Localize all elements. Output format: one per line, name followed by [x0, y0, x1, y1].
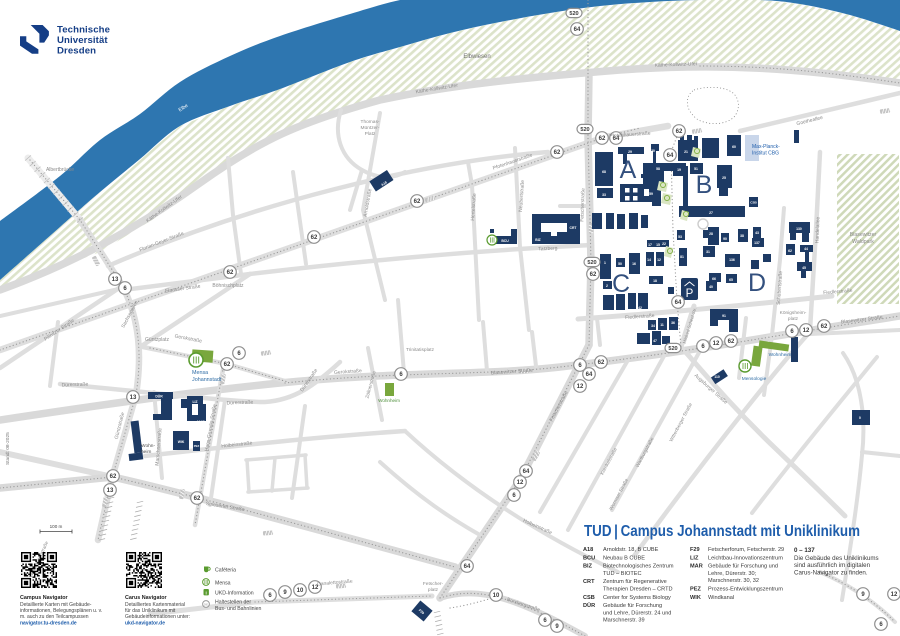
- svg-text:Marschnerstr. 39: Marschnerstr. 39: [603, 618, 645, 624]
- svg-text:Elbwiesen: Elbwiesen: [463, 54, 490, 60]
- svg-text:13: 13: [107, 488, 114, 494]
- svg-text:11: 11: [660, 323, 664, 327]
- svg-text:15: 15: [656, 243, 660, 247]
- svg-text:62: 62: [224, 362, 231, 368]
- svg-text:62: 62: [194, 496, 201, 502]
- svg-text:DÜR: DÜR: [583, 602, 595, 609]
- svg-text:31: 31: [706, 250, 710, 254]
- svg-text:D: D: [748, 269, 766, 297]
- svg-text:DÜR: DÜR: [155, 394, 163, 399]
- svg-text:59: 59: [649, 192, 653, 196]
- svg-text:64: 64: [675, 300, 682, 306]
- svg-text:LIZ: LIZ: [690, 555, 699, 561]
- svg-text:62: 62: [554, 150, 561, 156]
- svg-text:Haltestellen der: Haltestellen der: [215, 600, 251, 606]
- svg-text:Königsheim-: Königsheim-: [780, 310, 807, 316]
- svg-text:62: 62: [821, 324, 828, 330]
- svg-text:520: 520: [569, 11, 578, 17]
- svg-text:16: 16: [632, 262, 636, 266]
- svg-text:Dürerstraße: Dürerstraße: [227, 400, 254, 407]
- svg-text:38: 38: [740, 234, 744, 238]
- svg-text:20: 20: [688, 230, 692, 234]
- svg-text:58: 58: [656, 167, 660, 171]
- svg-text:29: 29: [628, 150, 632, 154]
- svg-text:Fetscher-: Fetscher-: [423, 581, 444, 587]
- svg-text:Dresden: Dresden: [57, 46, 96, 57]
- svg-text:heim: heim: [141, 449, 151, 455]
- svg-text:CRT: CRT: [570, 226, 578, 230]
- svg-text:Böhnischplatz: Böhnischplatz: [212, 283, 244, 289]
- svg-text:Universität: Universität: [57, 35, 108, 46]
- svg-text:Dürerstraße: Dürerstraße: [62, 382, 89, 389]
- svg-text:34: 34: [651, 324, 655, 328]
- svg-text:Neubau B CUBE: Neubau B CUBE: [603, 555, 645, 561]
- svg-text:65: 65: [729, 278, 733, 282]
- svg-text:Gebäude für Forschung: Gebäude für Forschung: [603, 603, 662, 609]
- svg-text:Wohnheim: Wohnheim: [769, 352, 792, 358]
- svg-text:47: 47: [653, 339, 657, 343]
- svg-text:Arnoldstr. 18, B CUBE: Arnoldstr. 18, B CUBE: [603, 547, 659, 553]
- svg-text:CSB: CSB: [750, 201, 757, 205]
- svg-text:25: 25: [722, 176, 726, 180]
- svg-text:Platz: Platz: [365, 131, 376, 137]
- svg-text:Marschnerstr. 30, 32: Marschnerstr. 30, 32: [708, 578, 759, 584]
- svg-text:36: 36: [671, 321, 675, 325]
- svg-text:B: B: [696, 171, 713, 199]
- svg-text:90: 90: [723, 237, 727, 241]
- svg-text:2: 2: [606, 284, 608, 288]
- svg-text:CRT: CRT: [583, 579, 595, 585]
- svg-text:Blasewitzer: Blasewitzer: [850, 232, 877, 238]
- svg-text:A18: A18: [583, 547, 593, 553]
- svg-text:Windkanal: Windkanal: [708, 595, 734, 601]
- svg-text:50: 50: [618, 262, 622, 266]
- svg-text:62: 62: [788, 249, 792, 253]
- svg-text:10: 10: [297, 588, 304, 594]
- svg-text:27: 27: [709, 211, 713, 215]
- svg-text:62: 62: [676, 129, 683, 135]
- svg-text:64: 64: [667, 153, 674, 159]
- svg-text:BCU: BCU: [583, 555, 595, 561]
- svg-text:12: 12: [517, 480, 524, 486]
- svg-text:21: 21: [684, 150, 688, 154]
- svg-text:64: 64: [464, 564, 471, 570]
- svg-text:14: 14: [647, 258, 651, 262]
- svg-text:BIZ: BIZ: [583, 564, 593, 570]
- svg-text:62: 62: [599, 136, 606, 142]
- svg-text:19: 19: [677, 168, 681, 172]
- svg-text:Mensa: Mensa: [215, 581, 231, 587]
- svg-text:91: 91: [722, 314, 726, 318]
- svg-text:Therapien Dresden – CRTD: Therapien Dresden – CRTD: [603, 587, 673, 593]
- svg-text:C: C: [612, 270, 630, 298]
- svg-text:TUD | Campus Johannstadt mit U: TUD | Campus Johannstadt mit Uniklinikum: [584, 523, 860, 540]
- svg-text:62: 62: [227, 270, 234, 276]
- svg-text:MAR: MAR: [197, 420, 205, 424]
- svg-text:Stand: 08-2025: Stand: 08-2025: [5, 432, 11, 465]
- svg-text:44: 44: [804, 247, 808, 251]
- svg-text:1: 1: [604, 261, 606, 265]
- svg-text:Gebäude für Forschung und: Gebäude für Forschung und: [708, 564, 778, 570]
- svg-text:Güntzplatz: Güntzplatz: [145, 337, 169, 343]
- svg-text:Leichtbau-Innovationszentrum: Leichtbau-Innovationszentrum: [708, 555, 783, 561]
- svg-text:12: 12: [803, 328, 810, 334]
- svg-text:12: 12: [713, 341, 720, 347]
- svg-text:P: P: [686, 288, 694, 300]
- svg-text:platz: platz: [428, 587, 439, 593]
- svg-text:22: 22: [662, 242, 666, 246]
- svg-text:12: 12: [891, 592, 898, 598]
- svg-text:H: H: [204, 602, 207, 607]
- svg-text:F29: F29: [690, 547, 700, 553]
- svg-text:0: 0: [859, 416, 861, 420]
- svg-text:Trinitatisplatz: Trinitatisplatz: [406, 347, 435, 353]
- svg-text:12: 12: [577, 384, 584, 390]
- svg-text:Institut CBG: Institut CBG: [752, 151, 779, 157]
- svg-text:Bus- und Bahnlinien: Bus- und Bahnlinien: [215, 606, 262, 612]
- svg-text:Biotechnologisches Zentrum: Biotechnologisches Zentrum: [603, 564, 674, 570]
- svg-text:sind ausführlich im digitalen: sind ausführlich im digitalen: [794, 562, 871, 569]
- svg-text:i: i: [206, 590, 207, 595]
- svg-text:Die Gebäude des Uniklinikums: Die Gebäude des Uniklinikums: [794, 555, 879, 562]
- svg-text:PEZ: PEZ: [690, 587, 701, 593]
- svg-text:17: 17: [648, 243, 652, 247]
- svg-text:60: 60: [732, 145, 736, 149]
- svg-text:71: 71: [800, 135, 804, 139]
- svg-text:62: 62: [590, 272, 597, 278]
- svg-text:520: 520: [580, 127, 589, 133]
- svg-text:13: 13: [130, 395, 137, 401]
- svg-text:Fetscherstraße: Fetscherstraße: [579, 188, 586, 222]
- svg-text:110: 110: [714, 375, 720, 379]
- svg-text:Lehre, Dürerstr. 30;: Lehre, Dürerstr. 30;: [708, 571, 757, 577]
- svg-text:33: 33: [602, 193, 606, 197]
- svg-text:m. auch zu den Teilcampussen: m. auch zu den Teilcampussen: [20, 614, 89, 620]
- svg-text:130: 130: [796, 227, 802, 231]
- svg-text:53: 53: [678, 235, 682, 239]
- svg-text:CSB: CSB: [583, 595, 595, 601]
- svg-text:Technische: Technische: [57, 25, 110, 36]
- svg-text:137: 137: [754, 241, 760, 245]
- svg-text:platz: platz: [788, 316, 799, 322]
- svg-text:UKD-Information: UKD-Information: [215, 591, 254, 597]
- svg-text:62: 62: [728, 339, 735, 345]
- svg-text:Wohnheim: Wohnheim: [378, 398, 400, 403]
- svg-text:51: 51: [694, 167, 698, 171]
- svg-text:Campus Navigator: Campus Navigator: [20, 595, 69, 601]
- svg-text:10: 10: [493, 593, 500, 599]
- svg-text:Zentrum für Regenerative: Zentrum für Regenerative: [603, 579, 667, 585]
- svg-text:Wohn-: Wohn-: [141, 443, 155, 449]
- svg-text:TUD – BIOTEC: TUD – BIOTEC: [603, 571, 642, 577]
- svg-text:43: 43: [755, 231, 759, 235]
- svg-text:LIZ: LIZ: [192, 400, 197, 404]
- svg-text:Mensologie: Mensologie: [742, 376, 767, 382]
- svg-text:66: 66: [712, 277, 716, 281]
- svg-text:62: 62: [598, 360, 605, 366]
- svg-text:ukd-navigator.de: ukd-navigator.de: [125, 621, 165, 627]
- svg-text:Johannstadt: Johannstadt: [192, 377, 222, 383]
- svg-text:0 – 137: 0 – 137: [794, 547, 815, 554]
- svg-text:Max-Planck-: Max-Planck-: [752, 144, 780, 150]
- svg-text:Center for Systems Biology: Center for Systems Biology: [603, 595, 671, 601]
- svg-text:Gebäudeinformationen unter:: Gebäudeinformationen unter:: [125, 614, 190, 620]
- svg-text:18: 18: [653, 279, 657, 283]
- svg-text:64: 64: [523, 469, 530, 475]
- svg-text:WIK: WIK: [178, 440, 185, 444]
- svg-text:PEZ: PEZ: [194, 444, 200, 448]
- svg-text:Carus Navigator: Carus Navigator: [125, 595, 168, 601]
- svg-text:64: 64: [586, 372, 593, 378]
- svg-text:28: 28: [709, 232, 713, 236]
- svg-text:68: 68: [602, 170, 606, 174]
- svg-text:100 m: 100 m: [50, 524, 63, 529]
- svg-text:64: 64: [574, 27, 581, 33]
- svg-text:62: 62: [311, 235, 318, 241]
- svg-text:520: 520: [668, 346, 677, 352]
- svg-text:navigator.tu-dresden.de: navigator.tu-dresden.de: [20, 621, 77, 627]
- svg-text:WIK: WIK: [690, 595, 701, 601]
- svg-text:62: 62: [414, 199, 421, 205]
- svg-text:und Lehre, Dürerstr. 24 und: und Lehre, Dürerstr. 24 und: [603, 610, 671, 616]
- svg-text:BIZ: BIZ: [535, 238, 540, 242]
- svg-text:Müntzer-: Müntzer-: [361, 125, 380, 131]
- svg-text:Tatzberg: Tatzberg: [538, 245, 558, 252]
- svg-text:Thomas-: Thomas-: [361, 119, 380, 125]
- svg-text:Carus-Navigator zu finden.: Carus-Navigator zu finden.: [794, 569, 868, 576]
- svg-text:Mensa: Mensa: [192, 370, 208, 376]
- svg-text:45: 45: [802, 266, 806, 270]
- svg-text:520: 520: [587, 260, 596, 266]
- svg-text:Albertbrücke: Albertbrücke: [46, 167, 74, 173]
- svg-text:81: 81: [680, 255, 684, 259]
- svg-text:Fetscherforum, Fetscherstr. 29: Fetscherforum, Fetscherstr. 29: [708, 547, 784, 553]
- svg-text:30: 30: [651, 149, 655, 153]
- svg-text:12: 12: [657, 258, 661, 262]
- svg-text:MAR: MAR: [690, 564, 703, 570]
- svg-text:BCU: BCU: [501, 239, 509, 243]
- svg-text:42: 42: [638, 306, 642, 310]
- svg-text:A: A: [620, 156, 637, 184]
- svg-text:136: 136: [729, 258, 735, 262]
- svg-text:40: 40: [709, 285, 713, 289]
- svg-text:62: 62: [110, 474, 117, 480]
- svg-text:Waldpark: Waldpark: [852, 239, 874, 245]
- svg-text:Handelallee: Handelallee: [815, 216, 822, 243]
- svg-text:13: 13: [112, 277, 119, 283]
- svg-text:Caféteria: Caféteria: [215, 568, 236, 574]
- svg-text:Prozess-Entwicklungszentrum: Prozess-Entwicklungszentrum: [708, 587, 783, 593]
